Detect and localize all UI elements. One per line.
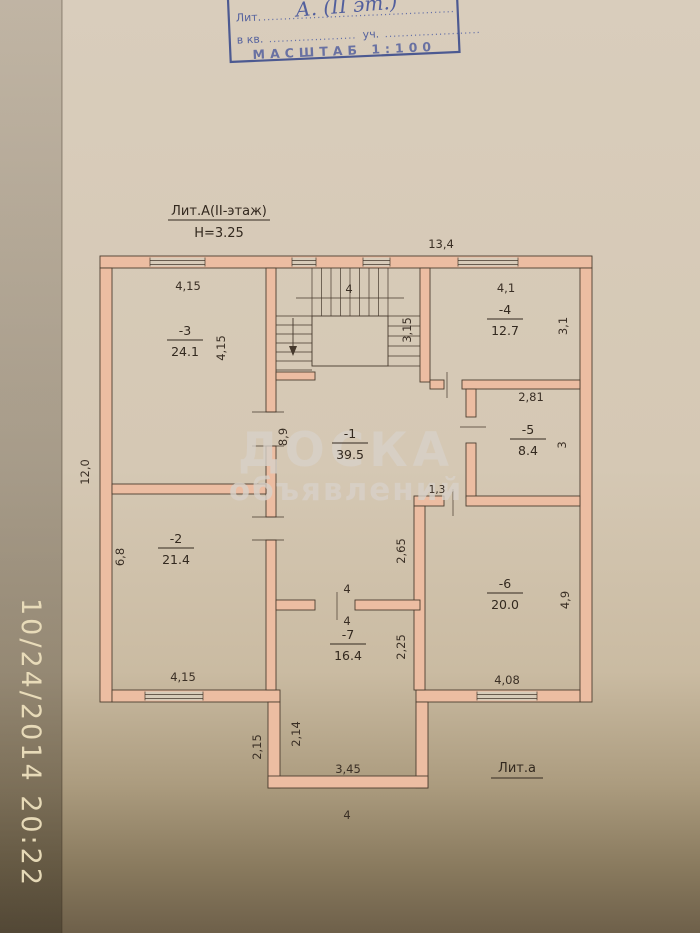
- stamp-liter-label: Лит.: [236, 11, 262, 25]
- floorplan-photo: Лит. ...................................…: [0, 0, 700, 933]
- wall-room6-left: [414, 506, 425, 690]
- wall-center-lower: [266, 540, 276, 690]
- annex-label: Лит.а: [498, 761, 536, 776]
- dim-room5-right: 3: [555, 441, 569, 448]
- wall-room4-bottom: [462, 380, 580, 389]
- camera-timestamp: 10/24/2014 20:22: [15, 598, 46, 888]
- wall-stair-bottom-stub: [276, 372, 315, 380]
- dim-outer-top: 13,4: [428, 237, 454, 251]
- window-room6: [477, 692, 537, 701]
- window-stair-right: [363, 258, 390, 267]
- dim-room4-right: 3,1: [556, 317, 570, 335]
- room-4-area: 12.7: [491, 323, 519, 338]
- room-6-number: -6: [499, 576, 512, 591]
- dim-porch-left-outer: 2,15: [250, 734, 264, 760]
- dim-outer-left: 12,0: [78, 459, 92, 485]
- dim-porch-bottom: 3,45: [335, 762, 361, 776]
- dim-room3-right: 4,15: [214, 335, 228, 361]
- wall-porch-left: [268, 702, 280, 788]
- plan-title: Лит.А(II-этаж): [171, 204, 267, 219]
- dim-room5-top: 2,81: [518, 390, 544, 404]
- dim-room3-top: 4,15: [175, 279, 201, 293]
- dim-porch-left-inner: 2,14: [289, 721, 303, 747]
- wall-room5-room6-divider: [466, 496, 580, 506]
- room-3-area: 24.1: [171, 344, 199, 359]
- wall-porch-right: [416, 702, 428, 788]
- window-stair-left: [292, 258, 316, 267]
- room-1-area: 39.5: [336, 447, 364, 462]
- room-6-area: 20.0: [491, 597, 519, 612]
- dim-room6-right: 4,9: [558, 591, 572, 609]
- dim-hall-right: 2,65: [394, 538, 408, 564]
- annex-label-block: Лит.а: [491, 761, 543, 778]
- wall-outer-right: [580, 268, 592, 702]
- photo-of-floorplan: Лит. ...................................…: [0, 0, 700, 933]
- wall-room7-top-right: [355, 600, 420, 610]
- window-room3: [150, 258, 205, 267]
- dim-stairs-right: 3,15: [400, 317, 414, 343]
- wall-center-upper: [266, 268, 276, 412]
- plan-height-label: Н=3.25: [194, 226, 244, 241]
- dim-room6-bottom: 4,08: [494, 673, 520, 687]
- dim-room2-bottom: 4,15: [170, 670, 196, 684]
- dim-room7-right: 2,25: [394, 634, 408, 660]
- dim-room1-left: 8,9: [276, 428, 290, 446]
- room-5-number: -5: [522, 422, 534, 437]
- window-room4: [458, 258, 518, 267]
- wall-stair-right: [420, 268, 430, 382]
- room-3-number: -3: [179, 323, 191, 338]
- window-room2: [145, 692, 203, 701]
- wall-room5-left-upper: [466, 389, 476, 417]
- room-7-area: 16.4: [334, 648, 362, 663]
- wall-room5-left-lower: [466, 443, 476, 498]
- dim-jog: 1,3: [429, 484, 446, 496]
- dim-room7-top-lower: 4: [343, 614, 350, 628]
- wall-outer-left: [100, 268, 112, 702]
- dim-room2-left: 6,8: [113, 548, 127, 566]
- room-4-number: -4: [499, 302, 512, 317]
- room-5-area: 8.4: [518, 443, 538, 458]
- room-1-number: -1: [344, 426, 356, 441]
- dim-porch-outer: 4: [343, 808, 350, 822]
- dim-room7-top-upper: 4: [343, 582, 350, 596]
- wall-porch-bottom: [268, 776, 428, 788]
- dim-stairs-top: 4: [345, 282, 352, 296]
- wall-room4-bottom-stub: [430, 380, 444, 389]
- stamp-kv-label: в кв.: [236, 32, 263, 46]
- room-7-number: -7: [342, 627, 354, 642]
- stamp-uch-label: уч.: [362, 27, 379, 41]
- dim-room4-top: 4,1: [497, 281, 515, 295]
- wall-room7-top-left: [276, 600, 315, 610]
- room-2-number: -2: [170, 531, 182, 546]
- room-2-area: 21.4: [162, 552, 190, 567]
